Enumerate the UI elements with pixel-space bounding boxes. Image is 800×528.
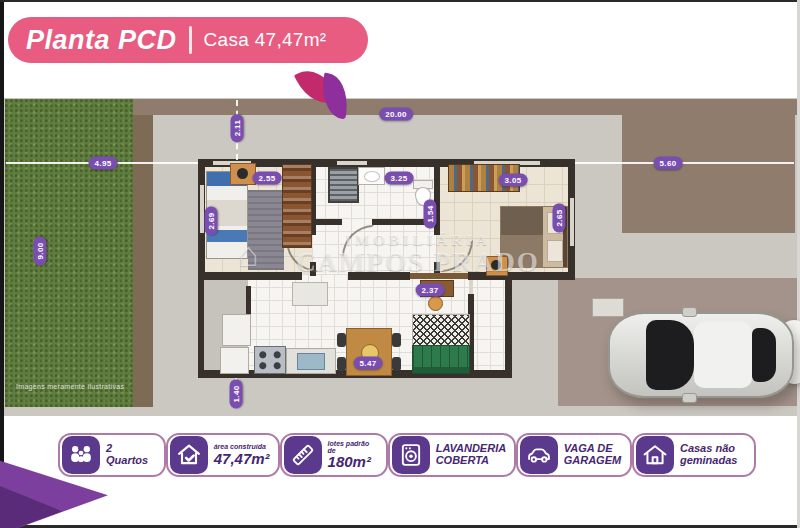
car-windshield [646, 320, 694, 390]
car-mirror-top [682, 307, 697, 317]
rug-living [412, 314, 470, 347]
dim-lot-width: 20.00 [379, 108, 413, 121]
badge-value: 47,47m² [214, 451, 270, 467]
kitchen-sink [297, 353, 325, 370]
page-subtitle: Casa 47,47m² [204, 29, 327, 51]
dim-hall-width: 2.37 [416, 284, 445, 297]
badge-detached: Casas não geminadas [632, 433, 756, 477]
ruler-icon [284, 436, 322, 474]
gravel-right-patch [622, 99, 795, 233]
badge-label: Casas não geminadas [680, 443, 746, 466]
car-top-view [606, 308, 796, 402]
page-title: Planta PCD [26, 25, 177, 56]
window-left [200, 185, 204, 233]
badge-lot-size: lotes padrão de 180m² [280, 433, 388, 477]
watermark: ⌂ IMOBILIÁRIA CAMPOS PRADO [268, 232, 568, 278]
dim-left-yard: 4.95 [89, 157, 118, 170]
dim-living-width: 5.47 [354, 357, 383, 370]
nightstand-bedroom1 [230, 163, 256, 185]
house-check-icon [170, 436, 208, 474]
shower [328, 167, 359, 203]
dim-bedroom1-width: 2.55 [253, 172, 282, 185]
stove [254, 346, 286, 374]
badge-built-area: área construída 47,47m² [166, 433, 280, 477]
family-icon [62, 436, 100, 474]
dirt-strip [133, 99, 153, 407]
frame-border [0, 0, 4, 528]
dim-front-setback: 2.11 [231, 114, 244, 142]
car-roof [694, 322, 752, 388]
sofa [412, 345, 470, 374]
double-house-icon [636, 436, 674, 474]
bathroom-sink [358, 167, 385, 185]
title-divider [189, 26, 192, 54]
frame-border [0, 0, 800, 2]
fridge [222, 314, 251, 346]
car-rear-window [752, 328, 776, 382]
badge-laundry: LAVANDERIA COBERTA [388, 433, 516, 477]
window-right [570, 198, 574, 246]
dim-bedroom1-depth: 2.69 [205, 207, 218, 236]
disclaimer-text: Imagens meramente ilustrativas [16, 383, 124, 390]
watermark-line2: CAMPOS PRADO [268, 247, 568, 278]
title-banner: Planta PCD Casa 47,47m² [8, 17, 368, 63]
stool [428, 296, 443, 311]
badge-label: VAGA DE GARAGEM [564, 443, 622, 466]
kitchen-cabinet [292, 282, 328, 306]
dim-bedroom2-width: 3.05 [499, 174, 528, 187]
floorplan-poster: ⌂ IMOBILIÁRIA CAMPOS PRADO Imagens meram… [0, 0, 800, 528]
dim-line-right-yard [575, 162, 794, 164]
grass-yard [5, 99, 135, 407]
badge-label: 2 Quartos [106, 443, 156, 466]
washer [220, 347, 249, 374]
features-bar: 2 Quartos área construída 47,47m² [58, 433, 756, 479]
badge-bedrooms: 2 Quartos [58, 433, 166, 477]
badge-label: LAVANDERIA COBERTA [436, 443, 506, 466]
dim-bathroom-width: 3.25 [385, 172, 414, 185]
dim-yard-depth: 9.00 [34, 237, 47, 266]
dim-laundry-width: 1.40 [230, 380, 243, 409]
badge-garage: VAGA DE GARAGEM [516, 433, 632, 477]
badge-caption: lotes padrão de [328, 440, 378, 455]
wall-left-bottom [198, 280, 204, 378]
dim-right-yard: 5.60 [654, 157, 683, 170]
window-bathroom [337, 161, 367, 165]
window-living [469, 280, 473, 294]
kitchen-counter [286, 348, 336, 374]
dim-bathroom-depth: 1.54 [424, 200, 437, 229]
wall-right-bottom [505, 280, 512, 378]
washing-machine-icon [392, 436, 430, 474]
dim-bedroom2-depth: 2.65 [553, 204, 566, 233]
car-mirror-bottom [682, 393, 697, 403]
wall-bathroom-bottom-l [312, 219, 342, 225]
badge-value: 180m² [328, 454, 378, 470]
car-icon [520, 436, 558, 474]
watermark-house-icon: ⌂ [238, 236, 258, 274]
